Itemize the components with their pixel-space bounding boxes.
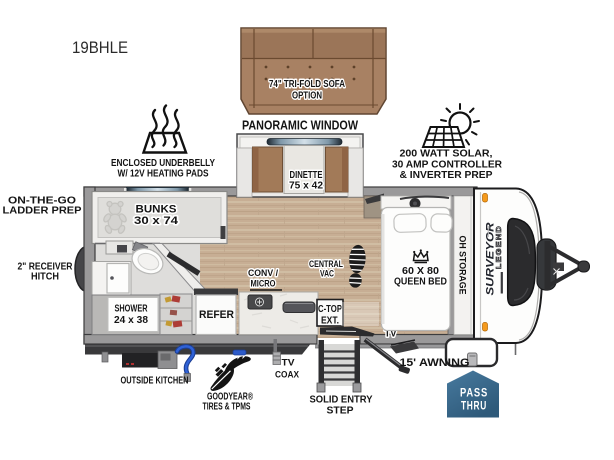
- svg-text:SHOWER: SHOWER: [115, 303, 148, 315]
- svg-text:THRU: THRU: [461, 399, 487, 413]
- svg-text:QUEEN BED: QUEEN BED: [394, 276, 447, 288]
- svg-text:24 x 38: 24 x 38: [114, 314, 148, 326]
- svg-text:STEP: STEP: [327, 405, 354, 417]
- svg-text:C-TOP: C-TOP: [318, 304, 342, 315]
- svg-text:HITCH: HITCH: [31, 272, 59, 283]
- svg-text:CONV /: CONV /: [248, 268, 278, 279]
- svg-text:15' AWNING: 15' AWNING: [400, 357, 470, 369]
- svg-text:COAX: COAX: [275, 370, 300, 381]
- svg-text:74" TRI-FOLD SOFA: 74" TRI-FOLD SOFA: [269, 78, 345, 90]
- svg-text:W/ 12V HEATING PADS: W/ 12V HEATING PADS: [118, 169, 209, 180]
- svg-text:LEGEND: LEGEND: [494, 225, 503, 269]
- svg-text:PANORAMIC WINDOW: PANORAMIC WINDOW: [242, 119, 358, 133]
- svg-text:TIRES & TPMS: TIRES & TPMS: [203, 402, 251, 413]
- svg-text:BUNKS: BUNKS: [136, 204, 177, 216]
- svg-text:MICRO: MICRO: [251, 279, 276, 290]
- svg-text:OPTION: OPTION: [292, 90, 322, 102]
- svg-text:30 x 74: 30 x 74: [134, 215, 179, 227]
- svg-text:EXT.: EXT.: [321, 316, 339, 327]
- svg-text:OH STORAGE: OH STORAGE: [457, 236, 468, 295]
- svg-text:REFER: REFER: [199, 309, 234, 321]
- svg-text:LADDER PREP: LADDER PREP: [3, 206, 82, 217]
- svg-text:ENCLOSED UNDERBELLY: ENCLOSED UNDERBELLY: [111, 158, 215, 169]
- svg-text:VAC: VAC: [320, 269, 334, 280]
- svg-text:19BHLE: 19BHLE: [72, 38, 128, 57]
- svg-text:OUTSIDE KITCHEN: OUTSIDE KITCHEN: [121, 376, 189, 387]
- svg-text:TV: TV: [282, 358, 296, 369]
- svg-text:PASS: PASS: [460, 386, 488, 400]
- svg-text:& INVERTER PREP: & INVERTER PREP: [400, 169, 493, 181]
- svg-text:75 x 42: 75 x 42: [289, 180, 323, 192]
